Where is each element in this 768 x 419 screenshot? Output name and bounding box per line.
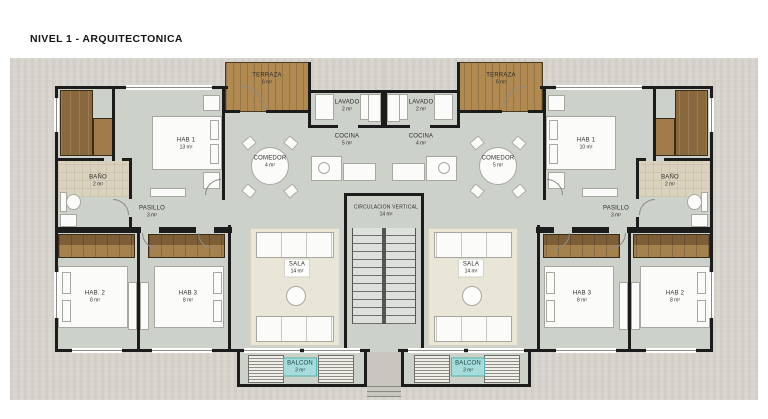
wall (112, 86, 115, 161)
room-area: 8 m² (85, 298, 105, 304)
room-label-pasillo-left: PASILLO 3 m² (139, 206, 165, 219)
room-label-balcon-right: BALCON 3 m² (451, 358, 485, 377)
room-area: 3 m² (287, 368, 313, 374)
room-name: BAÑO (661, 175, 679, 181)
kitchen-sink (318, 162, 330, 174)
balcony-glass-door (304, 348, 360, 353)
lounge-chair (414, 355, 450, 383)
room-label-balcon-left: BALCON 3 m² (283, 358, 317, 377)
closet (633, 234, 710, 258)
wall (384, 90, 460, 93)
room-label-hab1-left: HAB 1 13 m² (177, 138, 195, 151)
terrace-deck (225, 62, 310, 112)
room-area: 3 m² (455, 368, 481, 374)
terrace-deck (458, 62, 543, 112)
room-name: LAVADO (409, 100, 434, 106)
pillow (62, 300, 71, 322)
room-area: 2 m² (409, 107, 434, 113)
wall (384, 193, 424, 196)
room-label-comedor-right: COMEDOR 5 m² (482, 156, 515, 169)
entry-step (367, 386, 384, 387)
window (646, 348, 696, 353)
balcony-glass-door (244, 348, 300, 353)
room-label-cocina-left: COCINA 5 m² (335, 134, 360, 147)
room-area: 4 m² (409, 141, 434, 147)
staircase (352, 228, 383, 324)
room-label-sala-right: SALA 14 m² (458, 259, 484, 278)
wall (457, 62, 460, 128)
room-area: 6 m² (252, 80, 281, 86)
pillow (697, 300, 706, 322)
coffee-table (286, 286, 306, 306)
stove-counter (392, 163, 425, 181)
nightstand (203, 95, 220, 111)
room-name: HAB 1 (177, 138, 195, 144)
room-name: BALCON (455, 361, 481, 367)
pillow (210, 144, 219, 164)
wall (237, 352, 240, 387)
room-area: 5 m² (482, 163, 515, 169)
wardrobe (654, 118, 675, 156)
bench (150, 188, 186, 197)
wall (237, 384, 367, 387)
coffee-table (462, 286, 482, 306)
room-area: 2 m² (661, 182, 679, 188)
room-name: CIRCULACION VERTICAL (354, 205, 418, 211)
wall (636, 217, 639, 230)
wall (129, 158, 132, 199)
bathroom-sink (60, 214, 77, 227)
wall (129, 217, 132, 230)
balcony-glass-door (468, 348, 524, 353)
unit-left (0, 0, 384, 419)
room-name: COCINA (409, 134, 434, 140)
wall (344, 193, 384, 196)
room-name: LAVADO (335, 100, 360, 106)
lounge-chair (484, 355, 520, 383)
wall (344, 193, 347, 352)
room-label-bano-left: BAÑO 2 m² (89, 175, 107, 188)
room-label-pasillo-right: PASILLO 3 m² (603, 206, 629, 219)
sofa (256, 232, 334, 258)
entry-step (384, 396, 401, 397)
toilet-bowl (687, 194, 702, 210)
room-name: HAB 3 (179, 291, 197, 297)
closet (619, 282, 628, 330)
wall (528, 352, 531, 387)
wall (653, 86, 656, 161)
sofa (434, 232, 512, 258)
room-name: SALA (463, 262, 479, 268)
room-name: PASILLO (139, 206, 165, 212)
room-label-sala-left: SALA 14 m² (284, 259, 310, 278)
room-label-hab1-right: HAB 1 10 m² (577, 138, 595, 151)
entry-step (367, 396, 384, 397)
room-name: BALCON (287, 361, 313, 367)
closet (631, 282, 640, 330)
wall (308, 90, 384, 93)
stair-railing (384, 228, 386, 324)
room-name: HAB 2 (666, 291, 684, 297)
floor-plan-sheet: NIVEL 1 - ARQUITECTONICA (0, 0, 768, 419)
room-name: COCINA (335, 134, 360, 140)
room-area: 8 m² (573, 298, 591, 304)
room-label-lavado-left: LAVADO 2 m² (335, 100, 360, 113)
room-name: COMEDOR (254, 156, 287, 162)
porch-floor (367, 352, 384, 396)
room-area: 2 m² (335, 107, 360, 113)
room-name: SALA (289, 262, 305, 268)
wall (458, 110, 502, 113)
wall (308, 62, 311, 128)
room-area: 5 m² (335, 141, 360, 147)
wardrobe (93, 118, 114, 156)
room-area: 8 m² (179, 298, 197, 304)
window (126, 85, 212, 90)
window (556, 348, 616, 353)
nightstand (548, 95, 565, 111)
wall (137, 227, 140, 352)
wall (401, 384, 531, 387)
wall (228, 225, 231, 352)
porch-floor (384, 352, 401, 396)
room-name: PASILLO (603, 206, 629, 212)
window (72, 348, 122, 353)
room-label-terraza-right: TERRAZA 6 m² (486, 73, 515, 86)
room-area: 3 m² (603, 213, 629, 219)
pillow (546, 300, 555, 322)
entry-step (384, 391, 401, 392)
lounge-chair (248, 355, 284, 383)
room-area: 6 m² (486, 80, 515, 86)
wall (55, 158, 104, 161)
room-label-comedor-left: COMEDOR 4 m² (254, 156, 287, 169)
room-area: 14 m² (289, 269, 305, 275)
room-area: 2 m² (89, 182, 107, 188)
wall (430, 125, 458, 128)
toilet-bowl (66, 194, 81, 210)
room-name: BAÑO (89, 175, 107, 181)
room-area: 8 m² (666, 298, 684, 304)
wall (528, 110, 543, 113)
washer (315, 94, 334, 120)
service-duct (387, 94, 400, 122)
wall (664, 158, 713, 161)
room-name: TERRAZA (486, 73, 515, 79)
room-name: HAB 1 (577, 138, 595, 144)
wall (421, 193, 424, 352)
room-label-terraza-left: TERRAZA 6 m² (252, 73, 281, 86)
window (556, 85, 642, 90)
wall (627, 227, 713, 233)
room-label-circulacion: CIRCULACION VERTICAL 14 m² (354, 205, 418, 218)
window (152, 348, 212, 353)
lounge-chair (318, 355, 354, 383)
window (709, 98, 714, 132)
room-label-hab2-right: HAB 2 8 m² (666, 291, 684, 304)
pillow (213, 300, 222, 322)
room-area: 13 m² (177, 145, 195, 151)
closet (128, 282, 137, 330)
sofa (434, 316, 512, 342)
pillow (697, 272, 706, 294)
wall (384, 90, 387, 128)
pillow (213, 272, 222, 294)
bench (582, 188, 618, 197)
closet (58, 234, 135, 258)
pillow (546, 272, 555, 294)
pillow (549, 144, 558, 164)
room-label-cocina-right: COCINA 4 m² (409, 134, 434, 147)
balcony-glass-door (408, 348, 464, 353)
room-area: 4 m² (254, 163, 287, 169)
wall (384, 125, 410, 128)
entry-step (384, 386, 401, 387)
window (54, 98, 59, 132)
stove-counter (343, 163, 376, 181)
service-duct (368, 94, 381, 122)
window (709, 272, 714, 318)
room-label-bano-right: BAÑO 2 m² (661, 175, 679, 188)
pillow (549, 120, 558, 140)
entry-step (367, 391, 384, 392)
room-label-hab3-left: HAB 3 8 m² (179, 291, 197, 304)
room-area: 10 m² (577, 145, 595, 151)
wall (266, 110, 310, 113)
pillow (62, 272, 71, 294)
kitchen-sink (438, 162, 450, 174)
room-area: 14 m² (354, 212, 418, 218)
wall (401, 352, 404, 387)
wall (537, 225, 540, 352)
sofa (256, 316, 334, 342)
room-name: HAB. 2 (85, 291, 105, 297)
staircase (385, 228, 416, 324)
bathroom-sink (691, 214, 708, 227)
closet (140, 282, 149, 330)
wall (636, 158, 639, 199)
toilet-tank (701, 192, 708, 212)
wall (543, 86, 546, 200)
pillow (210, 120, 219, 140)
room-label-hab2-left: HAB. 2 8 m² (85, 291, 105, 304)
room-label-hab3-right: HAB 3 8 m² (573, 291, 591, 304)
window (54, 272, 59, 318)
room-label-lavado-right: LAVADO 2 m² (409, 100, 434, 113)
wall (225, 110, 240, 113)
wall (572, 227, 609, 233)
wall (159, 227, 196, 233)
wall (222, 86, 225, 200)
room-area: 3 m² (139, 213, 165, 219)
room-name: TERRAZA (252, 73, 281, 79)
wall (364, 352, 367, 387)
room-name: HAB 3 (573, 291, 591, 297)
wall (628, 227, 631, 352)
unit-right (384, 0, 768, 419)
wardrobe (675, 90, 708, 156)
washer (434, 94, 453, 120)
room-name: COMEDOR (482, 156, 515, 162)
wall (310, 125, 338, 128)
room-area: 14 m² (463, 269, 479, 275)
wardrobe (60, 90, 93, 156)
